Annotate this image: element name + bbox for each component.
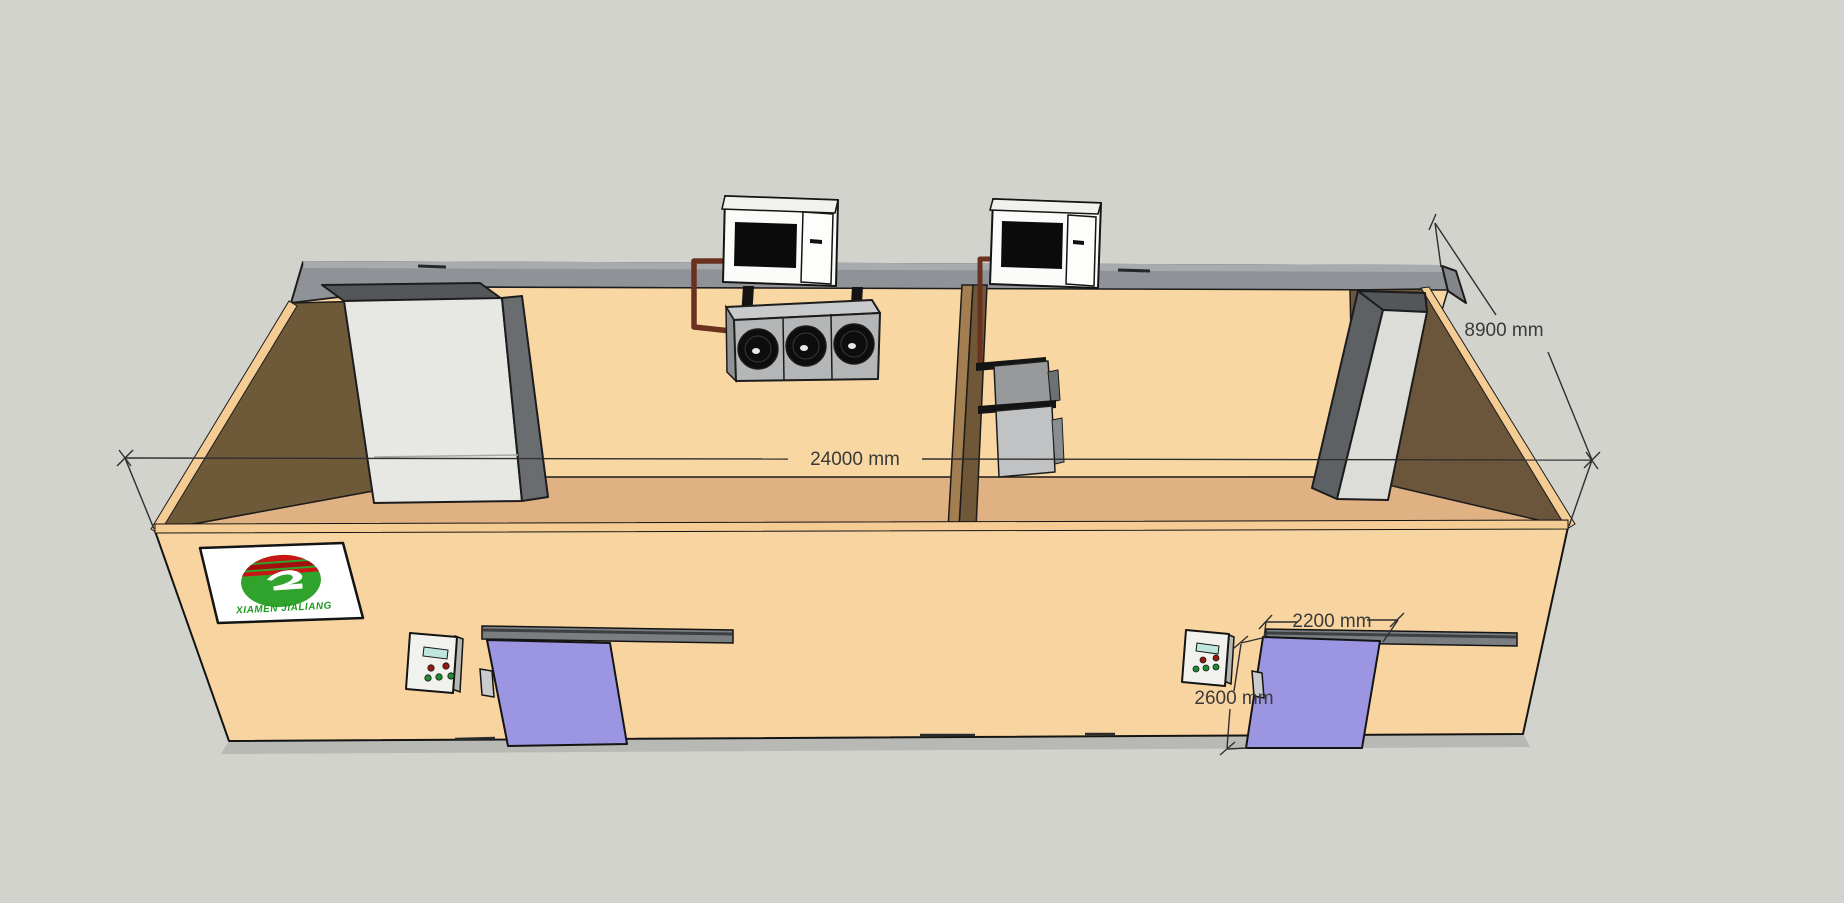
panel-button-red	[428, 665, 434, 671]
fan-icon	[834, 324, 874, 364]
dimension-label-door-width: 2200 mm	[1292, 611, 1371, 632]
left-column-front	[344, 298, 522, 503]
fan-icon	[738, 329, 778, 369]
fan-panel-divider	[831, 314, 832, 379]
dimension-label-length: 24000 mm	[810, 449, 900, 470]
left-door-face	[487, 640, 627, 746]
panel-face	[406, 633, 457, 693]
company-logo-plaque: XIAMEN JIALIANG	[200, 543, 363, 623]
panel-button-green	[436, 674, 442, 680]
dimension-label-depth: 8900 mm	[1464, 320, 1543, 341]
panel-button-green	[448, 673, 454, 679]
dim-extension	[1227, 748, 1247, 749]
left-door-handle	[480, 669, 494, 697]
condensing-unit-2	[990, 199, 1101, 288]
panel-button-green	[1193, 666, 1199, 672]
dimension-label-door-height: 2600 mm	[1194, 688, 1273, 709]
fan-panel-divider	[783, 317, 784, 380]
panel-button-red	[1200, 657, 1206, 663]
fan-icon	[786, 326, 826, 366]
panel-button-green	[425, 675, 431, 681]
panel-button-red	[443, 663, 449, 669]
right-door-control-panel	[1182, 630, 1234, 686]
condensing-unit-1-grille	[734, 222, 797, 268]
evaporator-2-lower-box	[996, 406, 1055, 477]
left-door-control-panel	[406, 633, 463, 693]
evaporator-unit-1	[726, 300, 880, 381]
condensing-unit-2-grille	[1001, 221, 1063, 269]
condensing-unit-2-panel-door	[1066, 215, 1096, 286]
condensing-unit-1-panel-door	[801, 212, 833, 284]
model-viewport: XIAMEN JIALIANG	[0, 0, 1844, 903]
condensing-unit-1	[722, 196, 838, 286]
panel-button-red	[1213, 655, 1219, 661]
panel-button-green	[1213, 664, 1219, 670]
cold-room-drawing: XIAMEN JIALIANG	[0, 0, 1844, 903]
panel-button-green	[1203, 665, 1209, 671]
